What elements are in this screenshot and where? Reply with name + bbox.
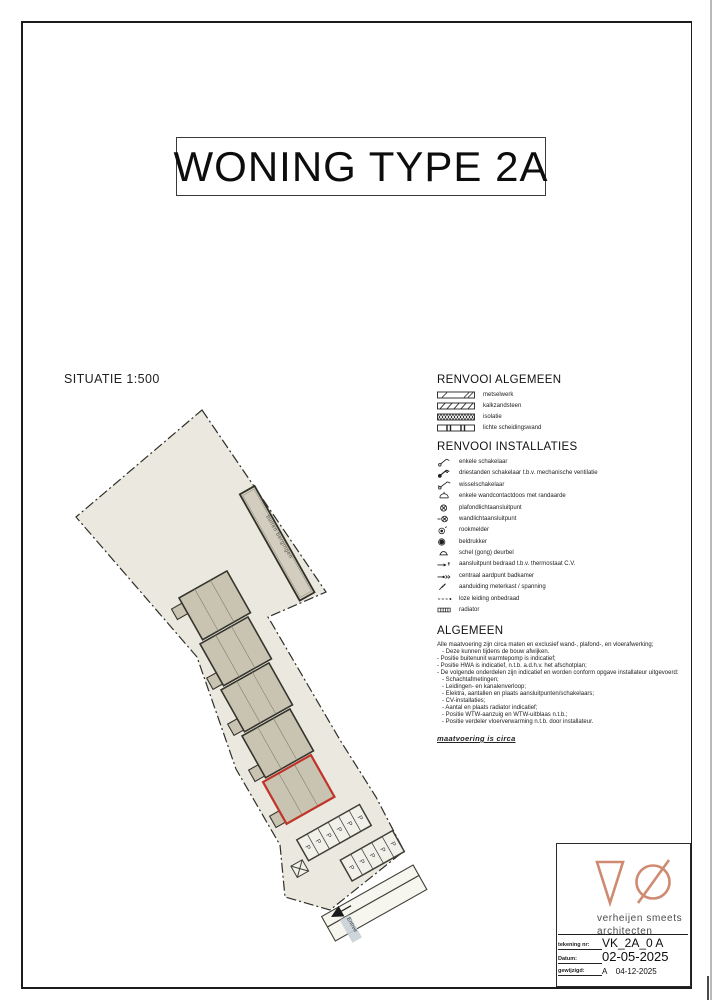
single-switch-icon	[437, 457, 454, 467]
architect-name-line1: verheijen smeets	[597, 912, 682, 925]
note-line: - Positie verdeler vloerverwarming n.t.b…	[437, 719, 689, 726]
note-line: - CV-installaties;	[437, 698, 689, 705]
radiator-icon	[437, 605, 454, 615]
note-line: - Leidingen- en kanalenverloop;	[437, 684, 689, 691]
legend-row: loze leiding onbedraad	[437, 595, 689, 603]
revision-row: gewijzigd: A 04-12-2025	[558, 964, 688, 976]
note-line: - Positie WTW-aanzuig en WTW-uitblaas n.…	[437, 712, 689, 719]
revision-value: A 04-12-2025	[602, 967, 657, 976]
note-line: - Schachtafmetingen;	[437, 677, 689, 684]
legend-installations-title: RENVOOI INSTALLATIES	[437, 441, 689, 453]
title-block-fields: tekening nr: VK_2A_0 A Datum: 02-05-2025…	[558, 934, 688, 976]
legend-row: enkele wandcontactdoos met randaarde	[437, 492, 689, 500]
note-line: - Elektra, aantallen en plaats aansluitp…	[437, 691, 689, 698]
legend-row: schel (gong) deurbel	[437, 549, 689, 557]
general-notes-title: ALGEMEEN	[437, 625, 689, 637]
legend-row: kalkzandsteen	[437, 402, 689, 410]
legend-row: beldrukker	[437, 538, 689, 546]
hatch-kalkzandsteen-icon	[437, 402, 475, 410]
two-way-switch-icon	[437, 480, 454, 490]
smoke-detector-icon	[437, 525, 454, 535]
legend-row: aansluitpunt bedraad t.b.v. thermostaat …	[437, 560, 689, 568]
drawing-number-label: tekening nr:	[558, 942, 602, 950]
legend-row: wandlichtaansluitpunt	[437, 515, 689, 523]
meter-cabinet-icon	[437, 582, 454, 592]
wall-socket-earthed-icon	[437, 491, 454, 501]
legend-row: aanduiding meterkast / spanning	[437, 583, 689, 591]
note-line: Alle maatvoering zijn circa maten en exc…	[437, 642, 689, 649]
legend-row: radiator	[437, 606, 689, 614]
note-line: - Positie buitenunit warmtepomp is indic…	[437, 656, 689, 663]
legend-row: lichte scheidingswand	[437, 424, 689, 432]
legend-row: isolatie	[437, 413, 689, 421]
wall-light-point-icon	[437, 514, 454, 524]
date-row: Datum: 02-05-2025	[558, 950, 688, 964]
ceiling-light-point-icon	[437, 503, 454, 513]
measurement-footnote: maatvoering is circa	[437, 734, 516, 743]
architect-logo	[590, 856, 682, 908]
legend-general: RENVOOI ALGEMEEN metselwerk kalkzandstee…	[437, 374, 689, 435]
three-position-switch-icon	[437, 468, 454, 478]
legend-row: rookmelder	[437, 526, 689, 534]
drawing-number-value: VK_2A_0 A	[602, 936, 663, 950]
note-line: - Aantal en plaats radiator indicatief;	[437, 705, 689, 712]
legend-row: metselwerk	[437, 391, 689, 399]
legend-row: wisselschakelaar	[437, 481, 689, 489]
legend-row: plafondlichtaansluitpunt	[437, 504, 689, 512]
note-line: - Deze kunnen tijdens de bouw afwijken.	[437, 649, 689, 656]
legend-row: centraal aardpunt badkamer	[437, 572, 689, 580]
legend-row: driestanden schakelaar t.b.v. mechanisch…	[437, 469, 689, 477]
hatch-scheidingswand-icon	[437, 424, 475, 432]
date-value: 02-05-2025	[602, 949, 669, 964]
general-notes: ALGEMEEN Alle maatvoering zijn circa mat…	[437, 625, 689, 726]
hatch-isolatie-icon	[437, 413, 475, 421]
legend-row: enkele schakelaar	[437, 458, 689, 466]
bell-push-icon	[437, 537, 454, 547]
legend-installations: RENVOOI INSTALLATIES enkele schakelaar d…	[437, 441, 689, 617]
earth-point-icon	[437, 571, 454, 581]
hatch-metselwerk-icon	[437, 391, 475, 399]
legend-general-title: RENVOOI ALGEMEEN	[437, 374, 689, 386]
date-label: Datum:	[558, 956, 602, 964]
revision-label: gewijzigd:	[558, 968, 602, 976]
note-line: - Positie HWA is indicatief, n.t.b. a.d.…	[437, 663, 689, 670]
thermostat-point-icon	[437, 559, 454, 569]
doorbell-gong-icon	[437, 548, 454, 558]
empty-conduit-icon	[437, 594, 454, 604]
note-line: - De volgende onderdelen zijn indicatief…	[437, 670, 689, 677]
logo-triangle	[597, 862, 623, 903]
